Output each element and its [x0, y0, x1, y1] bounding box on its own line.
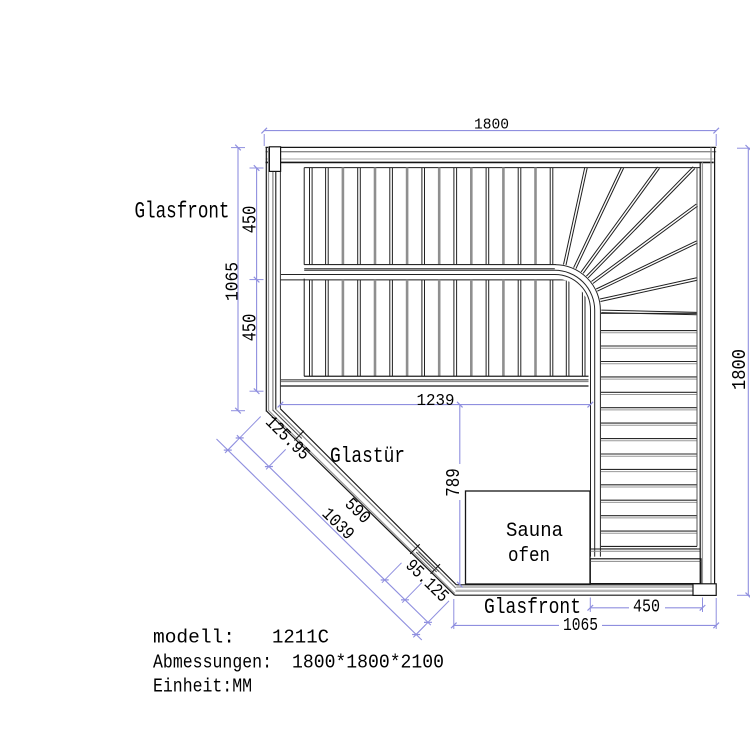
svg-text:1211C: 1211C [272, 627, 329, 649]
svg-text:Sauna: Sauna [506, 520, 563, 543]
svg-text:450: 450 [240, 206, 262, 234]
svg-text:ofen: ofen [508, 545, 550, 568]
svg-text:1065: 1065 [223, 262, 244, 301]
svg-text:Glastür: Glastür [330, 444, 405, 469]
svg-text:Glasfront: Glasfront [484, 594, 581, 620]
svg-text:450: 450 [240, 314, 262, 342]
svg-text:1239: 1239 [417, 392, 455, 411]
svg-text:1800*1800*2100: 1800*1800*2100 [292, 652, 444, 674]
svg-text:1800: 1800 [729, 349, 750, 390]
svg-text:Glasfront: Glasfront [135, 199, 230, 225]
svg-text:Einheit:MM: Einheit:MM [153, 676, 252, 698]
svg-text:modell:: modell: [153, 627, 235, 649]
svg-text:789: 789 [443, 468, 465, 497]
svg-text:1800: 1800 [474, 117, 509, 133]
svg-text:450: 450 [633, 598, 660, 618]
svg-text:Abmessungen:: Abmessungen: [153, 652, 272, 674]
